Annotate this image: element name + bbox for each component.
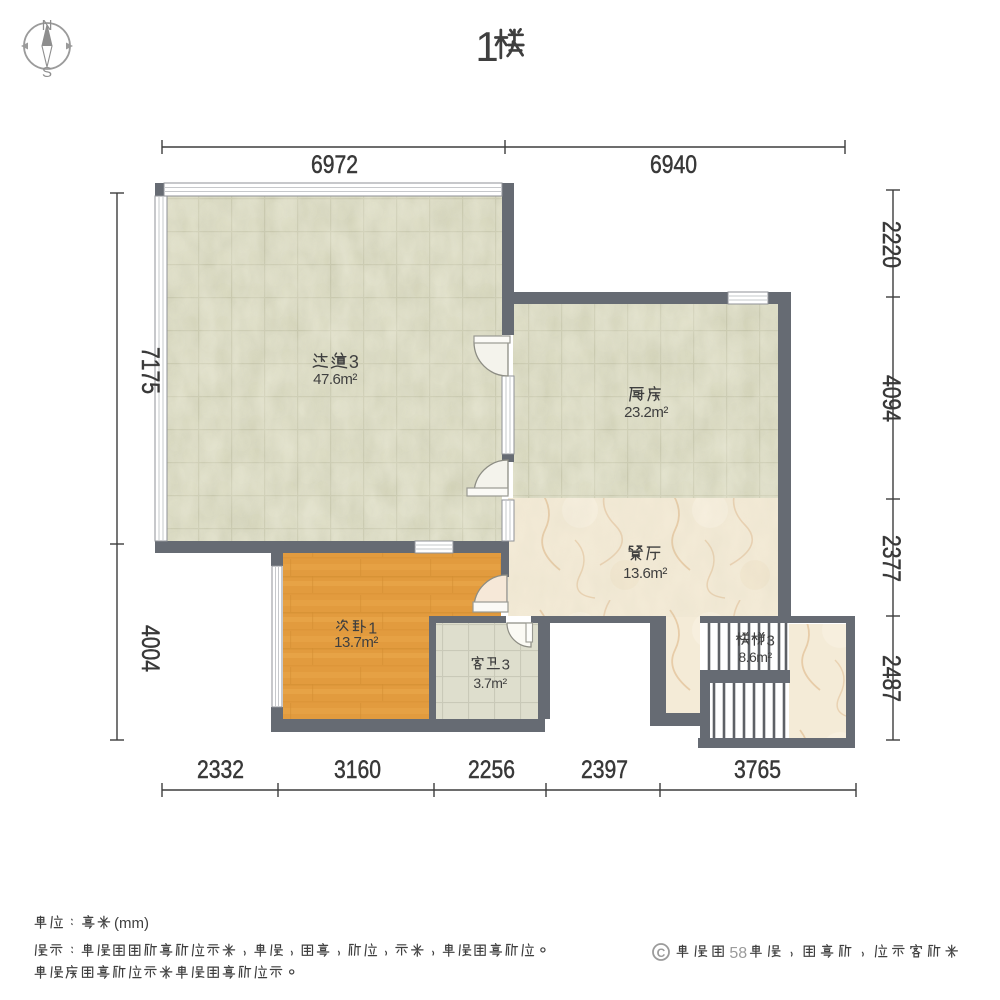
- svg-text:47.6m²: 47.6m²: [313, 371, 357, 388]
- svg-text:(mm): (mm): [114, 915, 149, 932]
- svg-text:2220: 2220: [877, 221, 905, 268]
- svg-text:1: 1: [475, 23, 498, 70]
- svg-text:2487: 2487: [877, 655, 905, 702]
- svg-text:2332: 2332: [197, 756, 244, 784]
- svg-text:3: 3: [502, 657, 510, 674]
- svg-text:6972: 6972: [311, 151, 358, 179]
- svg-text:6940: 6940: [650, 151, 697, 179]
- svg-text:N: N: [42, 17, 53, 34]
- svg-text:58: 58: [729, 945, 747, 962]
- svg-text:3: 3: [349, 352, 359, 372]
- svg-text:13.6m²: 13.6m²: [623, 565, 667, 582]
- svg-text:2377: 2377: [877, 535, 905, 582]
- svg-text:S: S: [42, 64, 52, 81]
- svg-text:2256: 2256: [468, 756, 515, 784]
- svg-text:23.2m²: 23.2m²: [624, 404, 668, 421]
- svg-text:7175: 7175: [136, 347, 164, 394]
- svg-text:8.6m²: 8.6m²: [738, 649, 772, 665]
- svg-text:13.7m²: 13.7m²: [334, 634, 378, 651]
- svg-text:3160: 3160: [334, 756, 381, 784]
- svg-text:3765: 3765: [734, 756, 781, 784]
- svg-text:2397: 2397: [581, 756, 628, 784]
- svg-text:4004: 4004: [136, 625, 164, 672]
- svg-text:3: 3: [767, 633, 775, 650]
- svg-text:C: C: [657, 946, 666, 960]
- svg-text:3.7m²: 3.7m²: [473, 675, 507, 691]
- svg-text:4094: 4094: [877, 375, 905, 422]
